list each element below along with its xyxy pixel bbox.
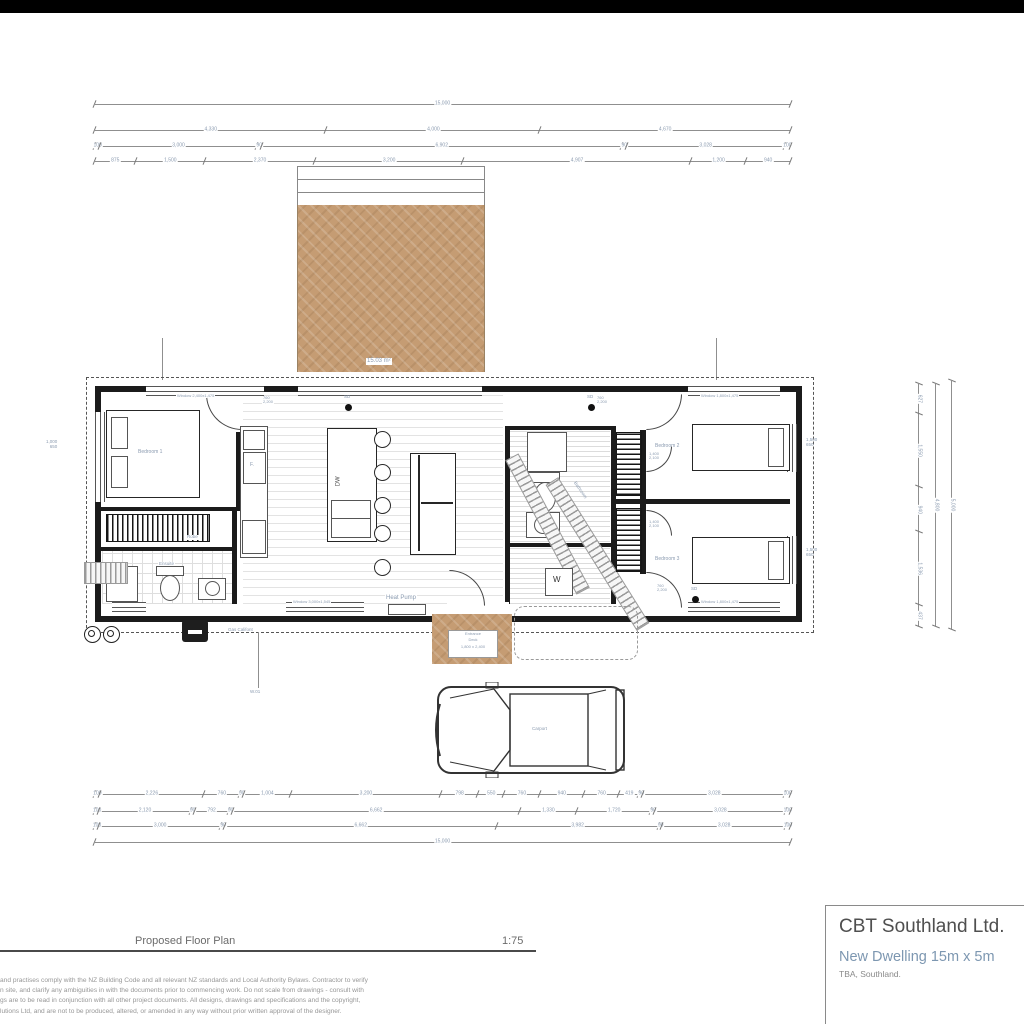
dimension-segment: 4,330 <box>95 126 326 134</box>
door-tag-1-h: 2,200 <box>263 400 273 404</box>
dimension-value: 1,200 <box>711 158 726 163</box>
dimension-row-top-4: 8751,5002,3703,2004,9071,200940 <box>95 157 790 165</box>
dimension-segment: 4,000 <box>326 126 540 134</box>
dimension-segment: 3,028 <box>643 790 785 798</box>
dimension-value: 419 <box>624 791 634 796</box>
wall-bath-top <box>505 426 616 430</box>
dimension-value: 100 <box>783 808 793 813</box>
stool-3 <box>374 497 391 514</box>
dimension-value: 3,028 <box>717 823 732 828</box>
dimension-value: 792 <box>206 808 216 813</box>
dimension-value: 6,662 <box>369 808 384 813</box>
dimension-value: 627 <box>917 394 922 404</box>
setout-tick-right <box>716 338 717 380</box>
sofa-cushion-line <box>421 502 453 504</box>
dimension-segment: 1,550 <box>915 414 923 488</box>
dimension-row-top-2: 4,3304,0004,670 <box>95 126 790 134</box>
dimension-value: 100 <box>783 823 793 828</box>
hob <box>242 520 266 554</box>
window-tag-bed2: 1,500 650 <box>806 438 817 448</box>
dimension-value: 3,028 <box>713 808 728 813</box>
dimension-value: 4,670 <box>658 127 673 132</box>
dimension-segment: 2,120 <box>99 807 190 815</box>
dimension-value: 3,982 <box>570 823 585 828</box>
gas-califont-slot <box>188 630 202 634</box>
drawing-title: Proposed Floor Plan <box>135 935 235 947</box>
bed2-pillow <box>768 428 784 467</box>
dimension-segment: 760 <box>204 790 240 798</box>
dimension-segment: 15,000 <box>95 100 790 108</box>
door-tag-3: 1,400 2,100 <box>648 452 660 461</box>
bed1-pillow-1 <box>111 417 128 449</box>
dimension-value: 2,120 <box>138 808 153 813</box>
dimension-segment: 6,662 <box>225 822 497 830</box>
dimension-value: 2,370 <box>253 158 268 163</box>
stool-1 <box>374 431 391 448</box>
dimension-segment: 100 <box>785 142 790 150</box>
dimension-segment: 1,500 <box>136 157 206 165</box>
dimension-value: 6,662 <box>353 823 368 828</box>
dimension-segment: 3,200 <box>315 157 463 165</box>
top-bar <box>0 0 1024 13</box>
sofa-back-line <box>418 455 420 551</box>
ensuite-toilet-bowl <box>160 575 180 601</box>
smoke-detector-label-3: SD <box>691 587 697 592</box>
deck-steps <box>297 166 485 207</box>
dimension-segment: 1,330 <box>520 807 577 815</box>
dimension-value: 3,000 <box>153 823 168 828</box>
kitchen-sink <box>243 430 265 450</box>
dimension-value: 2,226 <box>145 791 160 796</box>
wall-bath-left <box>505 426 510 604</box>
dimension-segment: 3,982 <box>497 822 659 830</box>
robe3-hangers <box>616 508 642 572</box>
dimension-segment: 4,670 <box>540 126 790 134</box>
dimension-value: 1,330 <box>541 808 556 813</box>
dimension-col-right-outer: 5,000 <box>948 381 956 629</box>
stool-5 <box>374 559 391 576</box>
note-line-3: gs are to be read in conjunction with al… <box>0 996 368 1006</box>
door-tag-2-h: 2,200 <box>597 400 607 404</box>
window-label-living: Window 3,000x1,545 <box>292 600 331 604</box>
window-label-bed2: Window 1,800x1,475 <box>700 394 739 398</box>
bed1-pillow-2 <box>111 456 128 488</box>
dimension-row-bottom-1: 1002,226760901,0043,20079855076094076041… <box>95 790 790 798</box>
dimension-segment: 6,902 <box>262 142 622 150</box>
washer-label: W <box>553 576 561 585</box>
robe2-hangers <box>616 432 642 496</box>
dimension-value: 437 <box>917 610 922 620</box>
island-sink-1 <box>331 500 371 520</box>
stool-2 <box>374 464 391 481</box>
title-block: CBT Southland Ltd. New Dwelling 15m x 5m… <box>825 905 1024 1024</box>
dimension-value: 100 <box>782 791 792 796</box>
dimension-value: 4,330 <box>203 127 218 132</box>
drawing-sheet: 15,000 4,3304,0004,670 1003,000906,90290… <box>0 0 1024 1024</box>
dimension-segment: 3,000 <box>99 822 221 830</box>
project-title: New Dwelling 15m x 5m <box>839 949 1024 965</box>
fridge <box>243 452 266 484</box>
note-line-4: lutions Ltd, and are not to be produced,… <box>0 1007 368 1017</box>
door-tag-4-h: 2,100 <box>649 524 659 528</box>
exterior-ramp <box>84 562 128 584</box>
heat-pump-label: Heat Pump <box>385 595 417 602</box>
dimension-segment: 1,720 <box>577 807 651 815</box>
dimension-value: 15,000 <box>434 839 451 844</box>
dimension-segment: 550 <box>478 790 504 798</box>
drawing-scale: 1:75 <box>502 935 523 947</box>
dimension-segment: 100 <box>786 807 790 815</box>
ensuite-basin-bowl <box>205 581 220 596</box>
dimension-value: 4,907 <box>570 158 585 163</box>
dimension-value: 940 <box>917 505 922 515</box>
dimension-segment: 940 <box>746 157 790 165</box>
project-location: TBA, Southland. <box>839 969 1024 979</box>
deck <box>297 205 485 372</box>
smoke-detector-icon-3 <box>692 596 699 603</box>
dimension-value: 875 <box>110 158 120 163</box>
dishwasher-label: DW <box>336 476 343 486</box>
shower <box>527 432 567 472</box>
sofa <box>410 453 456 555</box>
setout-tick-left <box>162 338 163 380</box>
car-top-view <box>430 682 632 778</box>
car-ghost-outline <box>514 606 638 660</box>
dimension-value: 3,200 <box>359 791 374 796</box>
dimension-segment: 3,028 <box>655 807 786 815</box>
bedroom3-label: Bedroom 3 <box>655 557 679 563</box>
notes-block: and practises comply with the NZ Buildin… <box>0 976 368 1017</box>
dimension-value: 1,536 <box>917 561 922 576</box>
door-tag-5-h: 2,200 <box>657 588 667 592</box>
dimension-segment: 940 <box>915 487 923 532</box>
dimension-segment: 6,662 <box>233 807 520 815</box>
window-tag-bed3-b: 650 <box>806 553 817 558</box>
dimension-value: 100 <box>782 143 792 148</box>
dimension-row-bottom-2: 1002,12090792906,6621,3301,720903,028100 <box>95 807 790 815</box>
dimension-value: 1,500 <box>163 158 178 163</box>
dimension-value: 4,800 <box>934 498 939 513</box>
bedroom1-label: Bedroom 1 <box>138 450 162 456</box>
dimension-row-top-3: 1003,000906,902903,028100 <box>95 142 790 150</box>
window-code-label: W.01 <box>250 690 260 695</box>
wall-robe1-top <box>101 507 241 511</box>
bedroom2-label: Bedroom 2 <box>655 444 679 450</box>
wall-bed2-bed3 <box>611 499 790 504</box>
dimension-segment: 940 <box>540 790 584 798</box>
dimension-segment: 1,536 <box>915 532 923 605</box>
window-ensuite-bottom <box>112 602 146 612</box>
dimension-value: 3,200 <box>382 158 397 163</box>
dimension-row-bottom-overall: 15,000 <box>95 838 790 846</box>
dimension-segment: 4,907 <box>463 157 690 165</box>
dimension-segment: 100 <box>786 822 790 830</box>
dimension-value: 940 <box>557 791 567 796</box>
dimension-segment: 15,000 <box>95 838 790 846</box>
dimension-value: 760 <box>596 791 606 796</box>
dimension-value: 1,720 <box>607 808 622 813</box>
dimension-segment: 798 <box>441 790 478 798</box>
door-tag-2: 760 2,200 <box>596 396 608 405</box>
dimension-segment: 2,370 <box>205 157 315 165</box>
dimension-row-top-overall: 15,000 <box>95 100 790 108</box>
dimension-segment: 875 <box>95 157 136 165</box>
dimension-segment: 3,200 <box>291 790 441 798</box>
dimension-value: 760 <box>217 791 227 796</box>
window-tag-left-b: 650 <box>46 445 57 450</box>
dimension-value: 6,902 <box>434 143 449 148</box>
dimension-segment: 3,000 <box>100 142 257 150</box>
dimension-segment: 437 <box>915 605 923 626</box>
dimension-segment: 1,004 <box>244 790 291 798</box>
dimension-value: 3,028 <box>698 143 713 148</box>
dimension-segment: 5,000 <box>948 381 956 629</box>
gas-bottle-2 <box>103 626 120 643</box>
dimension-segment: 792 <box>195 807 229 815</box>
entrance-label-box: Entrance Deck 1,800 x 2,400 <box>448 630 498 658</box>
window-bed1-left <box>95 412 105 502</box>
smoke-detector-label-2: SD <box>587 395 593 400</box>
heat-pump-unit <box>388 604 426 615</box>
window-label-bed1: Window 2,400x1,475 <box>176 394 215 398</box>
dimension-value: 760 <box>517 791 527 796</box>
gas-bottle-1 <box>84 626 101 643</box>
company-name: CBT Southland Ltd. <box>839 916 1024 938</box>
dimension-value: 15,000 <box>434 101 451 106</box>
door-tag-5: 760 2,200 <box>656 584 668 593</box>
dimension-segment: 3,028 <box>627 142 785 150</box>
window-leader-line <box>258 632 259 688</box>
fridge-label: F. <box>250 463 254 469</box>
dimension-segment: 760 <box>584 790 620 798</box>
note-line-1: and practises comply with the NZ Buildin… <box>0 976 368 986</box>
window-tag-bed3: 1,500 650 <box>806 548 817 558</box>
dimension-value: 550 <box>486 791 496 796</box>
robe1-label: Robe <box>186 535 199 540</box>
dimension-segment: 4,800 <box>932 384 940 626</box>
door-tag-1: 760 2,200 <box>262 396 274 405</box>
dimension-value: 3,028 <box>707 791 722 796</box>
dimension-value: 5,000 <box>950 498 955 513</box>
deck-area-label: 15.03 m² <box>366 358 392 365</box>
note-line-2: n site, and clarify any ambiguities in w… <box>0 986 368 996</box>
smoke-detector-icon-1 <box>345 404 352 411</box>
dimension-segment: 760 <box>504 790 540 798</box>
wall-ensuite-top <box>101 547 232 551</box>
dimension-segment: 627 <box>915 384 923 414</box>
dimension-segment: 1,200 <box>691 157 747 165</box>
dimension-segment: 2,226 <box>100 790 204 798</box>
wall-robe1-side <box>232 507 237 604</box>
window-tag-left: 1,000 650 <box>46 440 57 450</box>
dimension-value: 798 <box>454 791 464 796</box>
door-tag-3-h: 2,100 <box>649 456 659 460</box>
stool-4 <box>374 525 391 542</box>
window-label-bed3: Window 1,800x1,475 <box>700 600 739 604</box>
smoke-detector-label-1: SD <box>344 395 350 400</box>
entrance-label-3: 1,800 x 2,400 <box>449 644 497 650</box>
carport-label: Carport <box>532 727 547 732</box>
dimension-value: 1,004 <box>260 791 275 796</box>
dimension-col-right-mid: 4,800 <box>932 384 940 626</box>
dimension-value: 1,550 <box>917 443 922 458</box>
dimension-value: 4,000 <box>426 127 441 132</box>
bed3-pillow <box>768 541 784 580</box>
footer-rule <box>0 950 536 952</box>
dimension-value: 940 <box>763 158 773 163</box>
dimension-col-right-inner: 6271,5509401,536437 <box>915 384 923 626</box>
smoke-detector-icon-2 <box>588 404 595 411</box>
dimension-segment: 100 <box>785 790 790 798</box>
island-sink-2 <box>331 518 371 538</box>
dimension-segment: 3,028 <box>662 822 785 830</box>
slider-deck <box>298 386 482 396</box>
gas-califont-label: Gas Califont <box>228 628 253 633</box>
dimension-value: 3,000 <box>171 143 186 148</box>
door-tag-4: 1,400 2,100 <box>648 520 660 529</box>
dimension-row-bottom-3: 1003,000906,6623,982903,028100 <box>95 822 790 830</box>
window-tag-bed2-b: 650 <box>806 443 817 448</box>
